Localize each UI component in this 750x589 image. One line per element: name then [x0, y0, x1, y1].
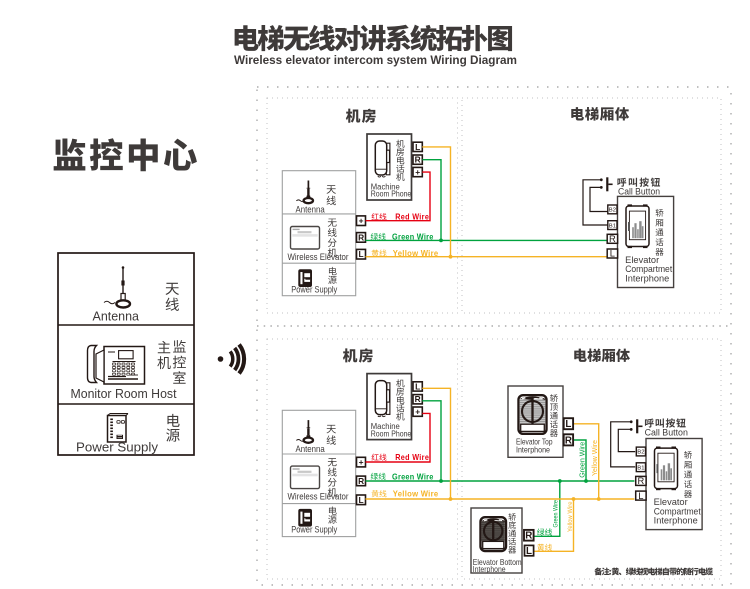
svg-text:R: R: [525, 531, 532, 542]
svg-text:L: L: [610, 248, 615, 259]
svg-text:+: +: [359, 216, 364, 226]
svg-text:Antenna: Antenna: [296, 205, 326, 215]
svg-text:R: R: [638, 475, 645, 486]
svg-text:B2: B2: [609, 208, 616, 214]
svg-text:Power Supply: Power Supply: [76, 441, 159, 455]
svg-text:Green Wire: Green Wire: [392, 233, 434, 242]
svg-text:Wireless Elevator: Wireless Elevator: [288, 492, 349, 502]
svg-text:L: L: [359, 495, 364, 505]
svg-text:Antenna: Antenna: [296, 444, 326, 454]
svg-text:Interphone: Interphone: [625, 273, 669, 283]
svg-text:Power Supply: Power Supply: [291, 285, 337, 295]
svg-text:Green Wire: Green Wire: [577, 442, 586, 478]
svg-text:Monitor Room Host: Monitor Room Host: [71, 387, 178, 401]
svg-text:L: L: [638, 490, 643, 501]
svg-text:Call Button: Call Button: [618, 186, 660, 196]
svg-text:Green Wire: Green Wire: [553, 500, 560, 528]
svg-text:Wireless elevator intercom sys: Wireless elevator intercom system Wiring…: [234, 53, 517, 67]
svg-text:L: L: [526, 546, 532, 557]
svg-text:Yellow Wire: Yellow Wire: [590, 440, 599, 476]
svg-text:+: +: [415, 407, 420, 417]
svg-text:B2: B2: [637, 450, 644, 456]
svg-text:Red Wire: Red Wire: [395, 213, 429, 222]
svg-text:L: L: [415, 381, 420, 391]
svg-text:R: R: [415, 155, 421, 165]
svg-text:Wireless Elevator: Wireless Elevator: [288, 252, 349, 262]
svg-text:Room Phone: Room Phone: [371, 429, 412, 438]
svg-text:L: L: [359, 249, 364, 259]
svg-text:Green Wire: Green Wire: [392, 472, 434, 481]
svg-text:+: +: [415, 167, 420, 177]
svg-text:Interphone: Interphone: [654, 516, 698, 526]
svg-text:R: R: [415, 394, 421, 404]
svg-text:B1: B1: [637, 465, 644, 471]
svg-text:Interphone: Interphone: [473, 564, 506, 574]
svg-text:L: L: [415, 142, 420, 152]
svg-text:Yellow Wire: Yellow Wire: [393, 490, 439, 499]
svg-text:R: R: [358, 476, 364, 486]
svg-text:+: +: [359, 457, 364, 467]
svg-text:R: R: [565, 435, 572, 446]
svg-text:R: R: [609, 233, 616, 244]
svg-text:R: R: [358, 232, 364, 242]
svg-text:Yellow Wire: Yellow Wire: [393, 249, 439, 258]
svg-text:Call Button: Call Button: [645, 428, 688, 438]
svg-text:Interphone: Interphone: [516, 444, 550, 454]
svg-text:Room Phone: Room Phone: [371, 190, 412, 199]
svg-text:Yellow Wire: Yellow Wire: [567, 501, 574, 532]
svg-text:Power Supply: Power Supply: [291, 524, 337, 534]
svg-text:Antenna: Antenna: [93, 309, 140, 324]
svg-text:Red Wire: Red Wire: [395, 453, 429, 462]
svg-text:L: L: [565, 419, 571, 430]
svg-text:B1: B1: [609, 223, 616, 229]
